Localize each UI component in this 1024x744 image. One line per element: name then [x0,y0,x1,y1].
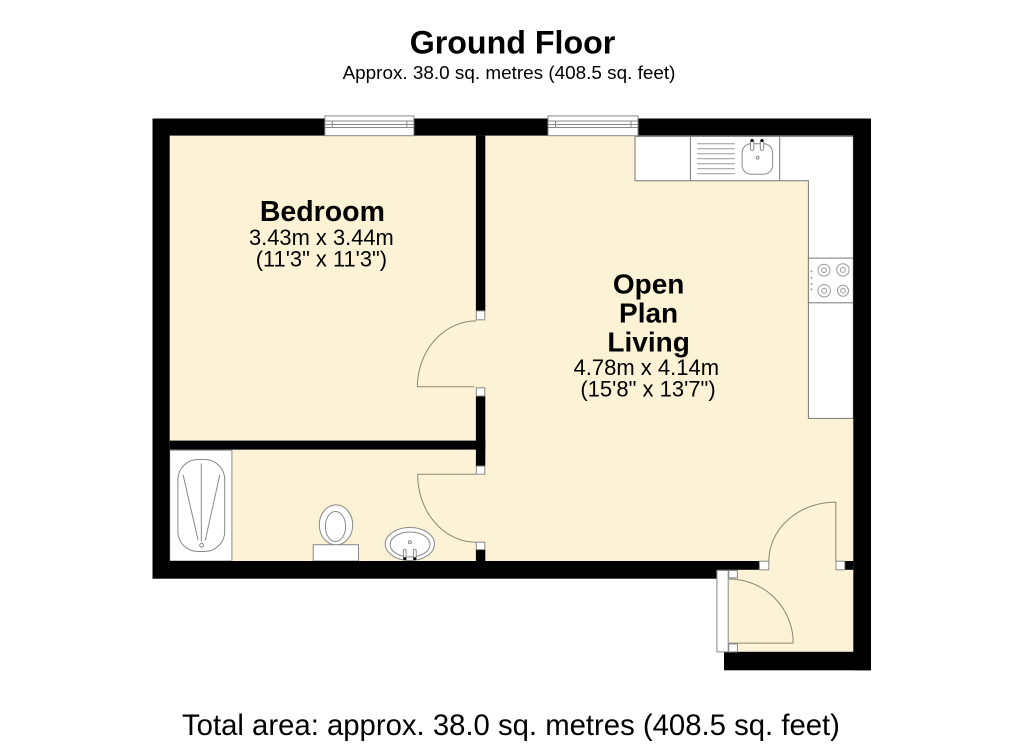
svg-text:Ground Floor: Ground Floor [410,25,616,61]
svg-text:Living: Living [607,327,689,358]
svg-text:Bedroom: Bedroom [260,196,385,228]
svg-text:(15'8" x 13'7"): (15'8" x 13'7") [580,377,715,402]
svg-text:Total area: approx. 38.0 sq. m: Total area: approx. 38.0 sq. metres (408… [182,709,840,742]
svg-text:Approx. 38.0 sq. metres (408.5: Approx. 38.0 sq. metres (408.5 sq. feet) [343,63,676,84]
svg-text:Open: Open [613,268,685,299]
svg-text:Plan: Plan [619,298,678,329]
svg-text:(11'3" x 11'3"): (11'3" x 11'3") [256,246,387,271]
